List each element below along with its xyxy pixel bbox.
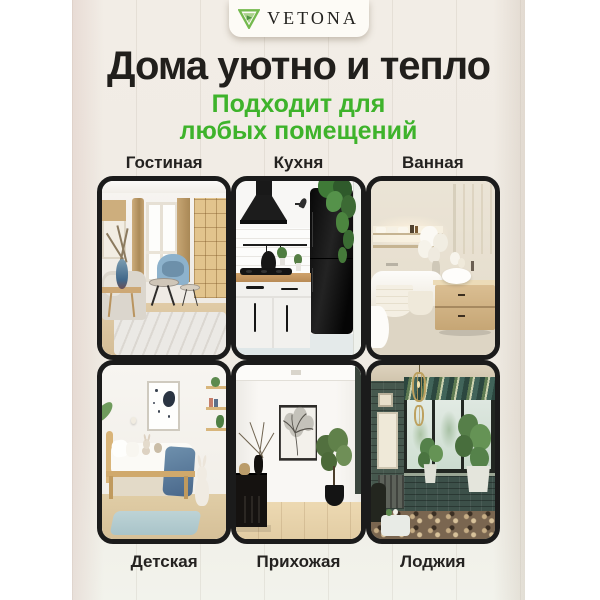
room-label-kids-room: Детская bbox=[97, 552, 231, 572]
blue-vase bbox=[116, 259, 128, 289]
black-vase bbox=[254, 455, 263, 474]
brand-badge: VETONA bbox=[229, 0, 369, 37]
subheadline: Подходит для любых помещений bbox=[72, 91, 525, 145]
cabinets bbox=[236, 282, 311, 355]
tree-art-frame bbox=[279, 405, 318, 461]
room-card-hallway bbox=[231, 360, 365, 544]
bed-rail bbox=[106, 471, 196, 477]
vessel-sink bbox=[442, 268, 472, 284]
room-card-loggia bbox=[366, 360, 500, 544]
window-strip bbox=[355, 365, 361, 494]
utensil-rail bbox=[243, 244, 308, 246]
living-room-photo bbox=[102, 181, 226, 355]
bathroom-photo bbox=[371, 181, 495, 355]
wall-panel bbox=[377, 412, 398, 469]
headline: Дома уютно и тепло bbox=[72, 45, 525, 87]
kitchen-photo bbox=[236, 181, 360, 355]
window bbox=[453, 184, 495, 254]
room-label-kitchen: Кухня bbox=[231, 153, 365, 173]
room-photo-grid bbox=[97, 176, 500, 544]
vetona-logo-icon bbox=[238, 9, 260, 29]
room-label-loggia: Лоджия bbox=[366, 552, 500, 572]
bottom-room-labels: Детская Прихожая Лоджия bbox=[97, 552, 500, 572]
wall-poster bbox=[147, 381, 181, 431]
wood-background-panel: VETONA Дома уютно и тепло Подходит для л… bbox=[72, 0, 525, 600]
promo-image: VETONA Дома уютно и тепло Подходит для л… bbox=[0, 0, 600, 600]
room-card-kitchen bbox=[231, 176, 365, 360]
brand-name: VETONA bbox=[267, 8, 359, 29]
room-card-kids-room bbox=[97, 360, 231, 544]
subheadline-line-2: любых помещений bbox=[72, 118, 525, 145]
room-card-living-room bbox=[97, 176, 231, 360]
room-card-bathroom bbox=[366, 176, 500, 360]
rug bbox=[109, 511, 201, 535]
plush-bunny bbox=[195, 478, 209, 506]
room-label-hallway: Прихожая bbox=[231, 552, 365, 572]
subheadline-line-1: Подходит для bbox=[72, 91, 525, 118]
kids-room-photo bbox=[102, 365, 226, 539]
loggia-photo bbox=[371, 365, 495, 539]
bookshelf bbox=[194, 198, 226, 297]
room-label-living-room: Гостиная bbox=[97, 153, 231, 173]
hallway-photo bbox=[236, 365, 360, 539]
room-label-bathroom: Ванная bbox=[366, 153, 500, 173]
top-room-labels: Гостиная Кухня Ванная bbox=[97, 153, 500, 173]
